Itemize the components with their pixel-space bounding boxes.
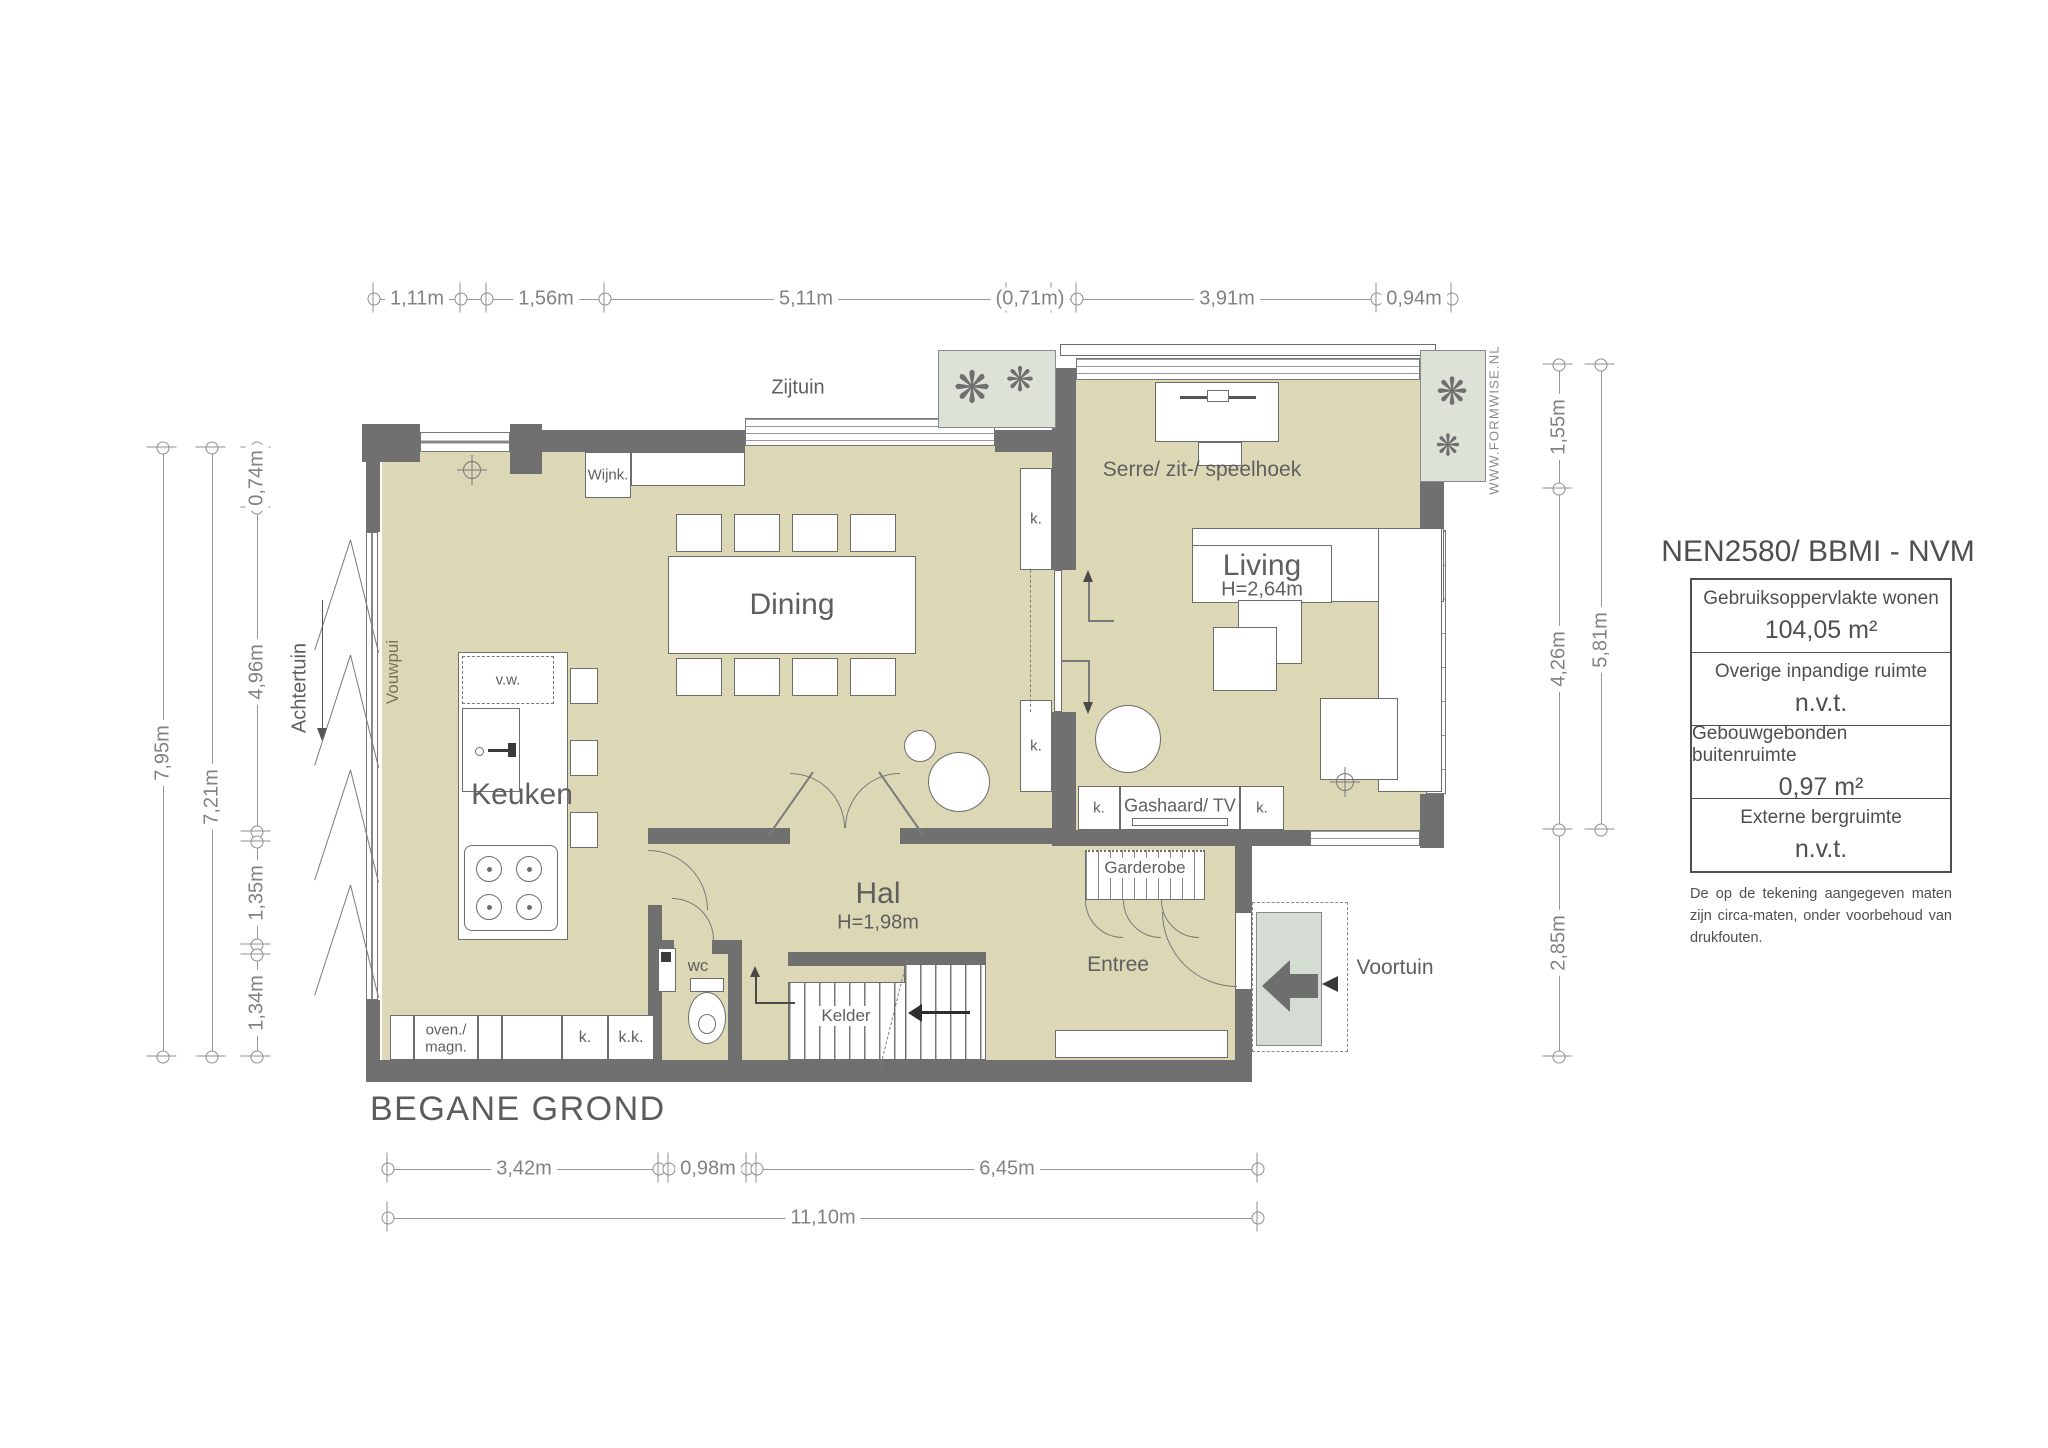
dim-marker: [1252, 1212, 1265, 1225]
wall-segment: [995, 430, 1052, 452]
kelder-arrow-line: [755, 974, 757, 1004]
dining-chair: [676, 658, 722, 696]
dim-label-bottom-total: 11,10m: [785, 1207, 860, 1230]
dim-line-right-outer: [1601, 365, 1602, 830]
dim-marker: [157, 442, 170, 455]
legend-row-label: Externe bergruimte: [1740, 807, 1902, 829]
entree-mat: [1055, 1030, 1228, 1058]
wall-segment: [366, 446, 380, 532]
wine-fridge-label: Wijnk.: [588, 467, 629, 484]
bar-stool: [570, 668, 598, 704]
legend-disclaimer: De op de tekening aangegeven maten zijn …: [1690, 884, 1952, 949]
dim-marker: [1071, 293, 1084, 306]
cabinet-k-label: k.: [1093, 800, 1105, 817]
kelder-arrow-head: [750, 966, 760, 977]
slide-arrow-stub: [1088, 620, 1114, 622]
dining-chair: [850, 514, 896, 552]
dim-label-top: 5,11m: [774, 288, 838, 311]
bar-stool: [570, 812, 598, 848]
slide-arrow-down: [1088, 660, 1090, 704]
survey-marker-icon: [463, 461, 481, 479]
kelder-label: Kelder: [817, 1006, 874, 1026]
zijtuin-label: Zijtuin: [771, 377, 824, 400]
legend-row: Gebouwgebonden buitenruimte 0,97 m²: [1692, 725, 1950, 798]
magn-label: magn.: [425, 1039, 467, 1056]
slide-arrow-up: [1088, 578, 1090, 622]
legend-row: Overige inpandige ruimte n.v.t.: [1692, 652, 1950, 725]
stair-arrow-head: [908, 1004, 922, 1022]
cabinet-k-label: k.: [579, 1029, 591, 1047]
keuken-label: Keuken: [471, 778, 573, 812]
dim-label-bottom: 6,45m: [974, 1158, 1040, 1181]
dim-marker: [1553, 359, 1566, 372]
wc-basin-tap: [661, 952, 671, 962]
entry-arrow-icon: [1290, 974, 1318, 998]
plant-icon: ❋: [954, 363, 991, 414]
dim-label-bottom: 0,98m: [675, 1158, 741, 1181]
wall-segment: [1076, 830, 1310, 846]
lounge-chair: [928, 752, 990, 812]
monitor-stand: [1207, 390, 1229, 402]
watermark: WWW.FORMWISE.NL: [1487, 345, 1502, 494]
survey-marker-icon: [1336, 773, 1354, 791]
legend-row-value: 0,97 m²: [1779, 773, 1864, 802]
legend-row-label: Gebouwgebonden buitenruimte: [1692, 723, 1950, 767]
legend-row-value: n.v.t.: [1795, 689, 1847, 718]
side-table: [904, 730, 936, 762]
toilet-bowl-inner: [698, 1014, 716, 1034]
sliding-door: [1054, 570, 1062, 712]
dim-marker: [1252, 1163, 1265, 1176]
dim-label-right: 4,26m: [1548, 626, 1571, 692]
counter-cabinet: [502, 1015, 562, 1060]
legend-title: NEN2580/ BBMI - NVM: [1661, 535, 1974, 569]
floorplan-canvas: 1,11m 1,56m 5,11m (0,71m) 3,91m 0,94m 3,…: [0, 0, 2048, 1448]
entree-label: Entree: [1087, 953, 1149, 977]
dim-label-top: 0,94m: [1381, 288, 1447, 311]
plan-title: BEGANE GROND: [370, 1090, 666, 1129]
dim-label-left-outer: 7,95m: [152, 720, 175, 786]
slide-arrow-stub: [1062, 660, 1088, 662]
dim-marker: [599, 293, 612, 306]
achtertuin-arrow-head: [317, 728, 327, 741]
dim-label-left: 1,35m: [246, 860, 269, 926]
burner-icon: [476, 894, 502, 920]
fold-door-leaf: [314, 540, 351, 651]
dim-marker: [157, 1051, 170, 1064]
cabinet-k-label: k.: [1030, 511, 1042, 528]
hal-height-label: H=1,98m: [837, 912, 919, 935]
legend-row: Externe bergruimte n.v.t.: [1692, 798, 1950, 871]
kitchen-counter-top: [631, 452, 745, 486]
dim-marker: [1553, 1051, 1566, 1064]
plant-icon: ❋: [1006, 360, 1035, 400]
dining-chair: [792, 658, 838, 696]
plant-icon: ❋: [1435, 429, 1460, 464]
dim-line-left-mid: [212, 448, 213, 1057]
dim-label-right: 2,85m: [1548, 910, 1571, 976]
dim-marker: [382, 1163, 395, 1176]
wall-segment: [1235, 846, 1252, 912]
legend-table: Gebruiksoppervlakte wonen 104,05 m² Over…: [1690, 578, 1952, 873]
dishwasher-label: v.w.: [496, 672, 521, 689]
front-door: [1235, 912, 1252, 990]
wall-segment: [1052, 712, 1076, 846]
wall-segment: [366, 1000, 380, 1082]
fold-door-leaf: [314, 770, 351, 881]
dim-marker: [206, 442, 219, 455]
wall-segment: [540, 430, 745, 452]
sliding-door-track: [1030, 570, 1031, 712]
dim-label-right-outer: 5,81m: [1590, 607, 1613, 673]
window-sill-serre: [1060, 344, 1436, 356]
living-height-label: H=2,64m: [1221, 579, 1303, 602]
achtertuin-label: Achtertuin: [289, 643, 312, 733]
dim-label-top: 1,56m: [513, 288, 579, 311]
hal-label: Hal: [855, 877, 900, 911]
fold-door-leaf: [314, 655, 351, 766]
cabinet-k-label: k.: [1030, 738, 1042, 755]
wall-segment: [366, 1060, 1252, 1082]
legend-row-value: 104,05 m²: [1765, 616, 1878, 645]
fold-door-leaf: [314, 885, 351, 996]
counter-cabinet: [478, 1015, 502, 1060]
dim-label-left-mid: 7,21m: [201, 764, 224, 830]
window-vouwpui: [366, 532, 378, 1000]
lounge-chair: [1095, 705, 1161, 773]
stair-arrow-tail: [922, 1011, 970, 1014]
dim-marker: [1553, 483, 1566, 496]
dining-chair: [850, 658, 896, 696]
dining-chair: [792, 514, 838, 552]
legend-row-label: Overige inpandige ruimte: [1715, 661, 1927, 683]
serre-label: Serre/ zit-/ speelhoek: [1103, 458, 1301, 482]
dim-label-bottom: 3,42m: [491, 1158, 557, 1181]
oven-label: oven./: [426, 1022, 467, 1039]
dim-line-left-inner: [257, 448, 258, 1057]
window-serre-top: [1076, 358, 1420, 380]
plant-icon: ❋: [1436, 370, 1468, 415]
dim-label-top: 1,11m: [385, 288, 449, 311]
porch-arrowhead-icon: [1322, 976, 1338, 992]
vouwpui-label: Vouwpui: [383, 640, 403, 704]
wall-segment: [1420, 794, 1444, 848]
toilet-tank: [690, 978, 724, 992]
bar-stool: [570, 740, 598, 776]
cabinet-kk-label: k.k.: [619, 1029, 644, 1047]
slide-arrow-up-head: [1083, 570, 1093, 582]
dining-chair: [734, 658, 780, 696]
voortuin-label: Voortuin: [1356, 956, 1433, 980]
dim-marker: [368, 293, 381, 306]
dim-marker: [382, 1212, 395, 1225]
fireplace-tv-label: Gashaard/ TV: [1124, 796, 1236, 817]
tv-screen: [1132, 818, 1228, 826]
kelder-arrow-stub: [755, 1002, 795, 1004]
burner-icon: [476, 856, 502, 882]
dim-marker: [1446, 293, 1459, 306]
legend-row-value: n.v.t.: [1795, 835, 1847, 864]
legend-row: Gebruiksoppervlakte wonen 104,05 m²: [1692, 580, 1950, 652]
legend-row-label: Gebruiksoppervlakte wonen: [1703, 588, 1939, 610]
slide-arrow-down-head: [1083, 702, 1093, 714]
dim-marker: [481, 293, 494, 306]
dim-marker: [251, 949, 264, 962]
dim-marker: [206, 1051, 219, 1064]
dim-marker: [751, 1163, 764, 1176]
dim-marker: [1553, 824, 1566, 837]
wc-label: wc: [688, 956, 709, 976]
dim-label-left: 0,74m: [246, 445, 269, 511]
window-kitchen-top: [420, 432, 510, 452]
window-living-bottom: [1310, 830, 1420, 846]
dining-label: Dining: [749, 588, 834, 622]
dim-label-left: 1,34m: [246, 970, 269, 1036]
coffee-table: [1213, 627, 1277, 691]
dim-label-top: 3,91m: [1194, 288, 1260, 311]
dim-label-top: (0,71m): [991, 288, 1070, 311]
sofa-chaise: [1320, 698, 1398, 780]
dim-marker: [663, 1163, 676, 1176]
faucet-icon: [488, 749, 510, 752]
dim-label-right: 1,55m: [1548, 394, 1571, 460]
cabinet-k-label: k.: [1256, 800, 1268, 817]
dining-chair: [734, 514, 780, 552]
counter-cabinet: [390, 1015, 414, 1060]
dining-chair: [676, 514, 722, 552]
dim-marker: [251, 1051, 264, 1064]
wall-segment: [728, 940, 742, 1060]
dim-marker: [1595, 359, 1608, 372]
dim-label-left: 4,96m: [246, 639, 269, 705]
achtertuin-arrow-line: [322, 600, 323, 730]
garderobe-label: Garderobe: [1100, 858, 1189, 878]
sink-drain-icon: [475, 747, 484, 756]
dim-marker: [1595, 824, 1608, 837]
wall-segment: [510, 424, 542, 474]
burner-icon: [516, 856, 542, 882]
entry-arrow-icon: [1262, 960, 1290, 1012]
dim-marker: [251, 836, 264, 849]
dim-marker: [455, 293, 468, 306]
burner-icon: [516, 894, 542, 920]
faucet-icon: [508, 743, 516, 757]
stove: [464, 845, 558, 931]
